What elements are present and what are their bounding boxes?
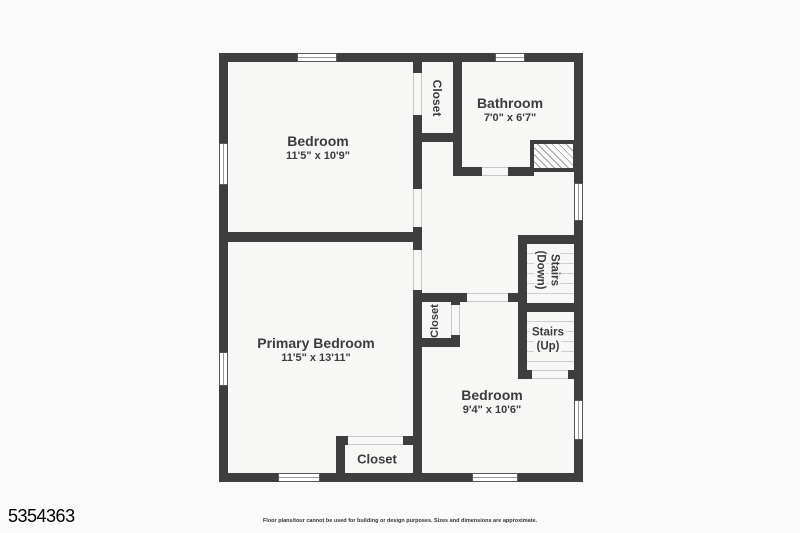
wall-closet-top-bottom: [413, 133, 462, 142]
wall-stairs-top: [518, 235, 574, 244]
wall-bathroom-bottom-left: [453, 167, 482, 176]
wall-closet-bottom-top-left: [336, 436, 348, 445]
wall-outer-left: [219, 53, 228, 482]
door-bathroom: [482, 167, 508, 176]
door-closet-mid: [451, 305, 460, 335]
window-right-bedroom: [574, 400, 583, 440]
wall-closet-mid-right-top: [451, 293, 460, 305]
mls-number: 5354363: [8, 506, 75, 527]
bedroom-bottom-dims: 9'4" x 10'6": [461, 403, 522, 417]
closet-top-name: Closet: [430, 80, 444, 117]
wall-stairs-bottom-left: [518, 370, 532, 379]
wall-center-vertical-seg4: [413, 290, 422, 473]
window-bottom-bedroom: [472, 473, 518, 482]
disclaimer-text: Floor plans/tour cannot be used for buil…: [263, 518, 537, 524]
label-bedroom-top: Bedroom 11'5" x 10'9": [286, 133, 350, 163]
wall-center-vertical-seg2: [413, 115, 422, 189]
wall-bedroom-divider: [219, 232, 422, 242]
door-primary-bedroom: [413, 250, 422, 290]
door-bedroom-top: [413, 189, 422, 227]
bedroom-top-name: Bedroom: [286, 133, 350, 149]
wall-stairs-divider: [518, 303, 574, 312]
bedroom-bottom-name: Bedroom: [461, 387, 522, 403]
wall-outer-bottom: [219, 473, 583, 482]
window-bottom-primary: [278, 473, 320, 482]
floorplan-canvas: Bedroom 11'5" x 10'9" Closet Bathroom 7'…: [0, 0, 800, 533]
door-closet-top: [413, 73, 422, 115]
stairs-down-line2: (Down): [533, 249, 547, 292]
label-closet-bottom: Closet: [357, 452, 397, 467]
wall-closet-mid-bottom: [413, 338, 460, 347]
stairs-down-line1: Stairs: [547, 249, 561, 292]
window-right-hallway: [574, 183, 583, 221]
bathroom-name: Bathroom: [477, 95, 543, 111]
wall-outer-top: [219, 53, 583, 62]
window-top-bedroom: [297, 53, 337, 62]
window-left-bedroom: [219, 143, 228, 185]
label-closet-top: Closet: [430, 80, 444, 117]
bathroom-dims: 7'0" x 6'7": [477, 111, 543, 125]
label-closet-mid: Closet: [429, 304, 441, 338]
label-bedroom-bottom: Bedroom 9'4" x 10'6": [461, 387, 522, 417]
hatched-chase-area: [530, 140, 577, 172]
label-primary-bedroom: Primary Bedroom 11'5" x 13'11": [257, 335, 374, 365]
bedroom-top-dims: 11'5" x 10'9": [286, 149, 350, 163]
closet-bottom-name: Closet: [357, 452, 397, 467]
primary-bedroom-name: Primary Bedroom: [257, 335, 374, 351]
window-top-bathroom: [495, 53, 525, 62]
door-hallway-bedroom: [467, 293, 508, 302]
stairs-up-line1: Stairs: [530, 326, 566, 340]
opening-stairs-up: [532, 370, 568, 379]
wall-closet-bottom-top-right: [403, 436, 422, 445]
window-left-primary: [219, 352, 228, 386]
door-closet-bottom: [348, 436, 403, 445]
primary-bedroom-dims: 11'5" x 13'11": [257, 351, 374, 365]
wall-stairs-bottom-right: [568, 370, 574, 379]
closet-mid-name: Closet: [429, 304, 441, 338]
label-stairs-up: Stairs (Up): [530, 326, 566, 355]
label-bathroom: Bathroom 7'0" x 6'7": [477, 95, 543, 125]
wall-center-vertical-seg1: [413, 62, 422, 73]
stairs-up-line2: (Up): [530, 340, 566, 354]
label-stairs-down: Stairs (Down): [533, 249, 562, 292]
wall-closet-top-right: [453, 53, 462, 176]
